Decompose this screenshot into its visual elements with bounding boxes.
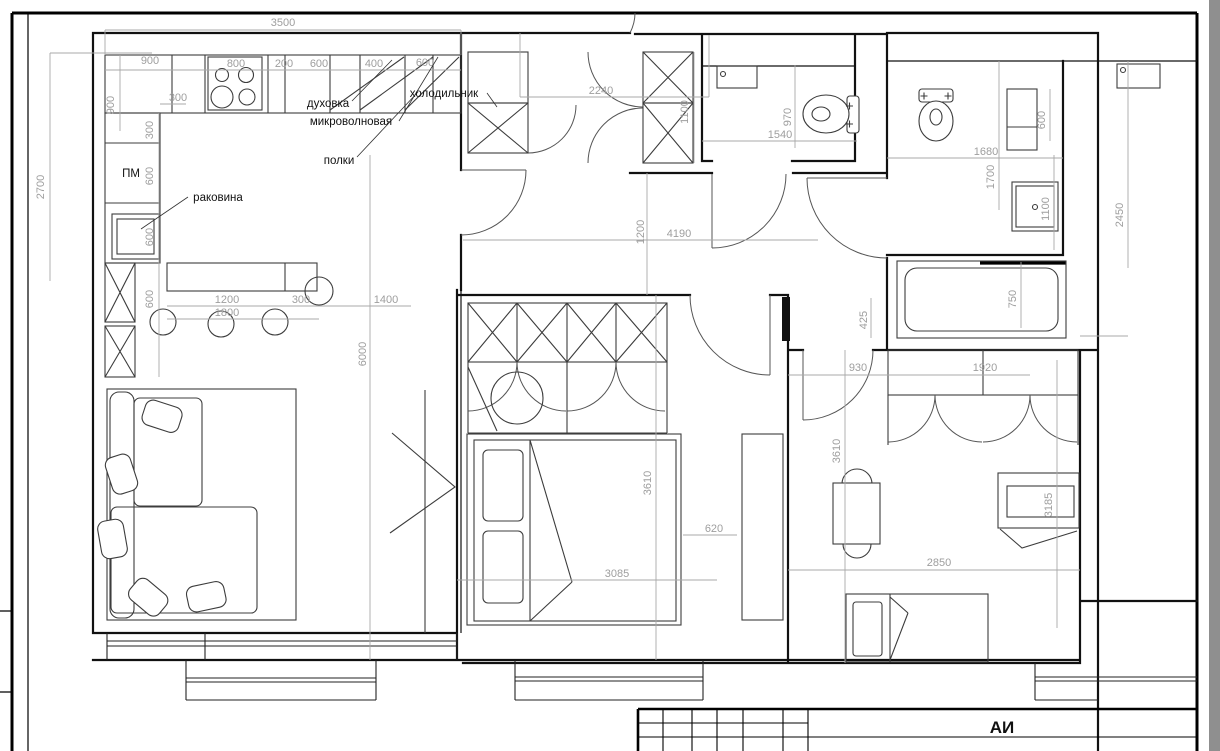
bar-stool (262, 309, 288, 335)
dim-text: 1800 (215, 307, 239, 319)
dim-text: 3610 (831, 439, 843, 463)
dim-text: 1100 (1040, 197, 1052, 221)
kids-table (833, 469, 880, 558)
entrance-door-arc (630, 13, 635, 33)
dim-text: 1540 (768, 129, 792, 141)
toilet-icon (919, 89, 953, 141)
dim-text: 2240 (589, 85, 613, 97)
chair-icon (491, 372, 543, 424)
pillow (483, 531, 523, 603)
dim-text: 900 (105, 96, 117, 114)
dim-text: 900 (141, 55, 159, 67)
dim-text: 6000 (357, 342, 369, 366)
dim-text: 3610 (642, 471, 654, 495)
stamp-code: АИ (990, 718, 1015, 737)
dim-text: 1100 (679, 100, 691, 124)
living-room-furniture (96, 389, 455, 633)
dim-text: 300 (169, 92, 187, 104)
pillow (853, 602, 882, 656)
bedroom-wardrobe (468, 303, 667, 433)
dimension-texts: 3500 900 800 200 600 400 600 300 900 300… (35, 17, 1126, 580)
microwave-label: микроволновая (310, 116, 392, 128)
windows (107, 633, 1197, 700)
dim-text: 600 (1036, 111, 1048, 129)
shelves-label: полки (324, 155, 355, 167)
corner-sofa (96, 389, 296, 620)
sink-label: раковина (193, 192, 243, 204)
double-bed-icon (467, 434, 681, 625)
dim-text: 2450 (1114, 203, 1126, 227)
dim-text: 400 (365, 58, 383, 70)
dim-text: 620 (705, 523, 723, 535)
dim-text: 300 (292, 294, 310, 306)
dim-text: 3085 (605, 568, 629, 580)
bathroom-cabinet (1007, 89, 1037, 150)
bar-stool (150, 309, 176, 335)
floor-plan-canvas[interactable]: 3500 900 800 200 600 400 600 300 900 300… (0, 0, 1220, 751)
dim-text: 1920 (973, 362, 997, 374)
dim-text: 3185 (1043, 493, 1055, 517)
dim-text: 930 (849, 362, 867, 374)
tall-cabinet (105, 263, 135, 377)
dim-text: 425 (858, 311, 870, 329)
dim-text: 300 (144, 121, 156, 139)
oven-label: духовка (307, 98, 350, 110)
sofa-cushion (185, 580, 228, 613)
dim-text: 200 (275, 58, 293, 70)
dim-text: 1700 (985, 165, 997, 189)
dim-text: 2850 (927, 557, 951, 569)
sofa-cushion (96, 518, 128, 560)
bathroom-sink-icon (717, 66, 757, 88)
floor-plan-drawing: 3500 900 800 200 600 400 600 300 900 300… (0, 0, 1220, 751)
dim-text: 1400 (374, 294, 398, 306)
walls (93, 13, 1197, 751)
dim-text: 600 (144, 228, 156, 246)
hall-closets (468, 52, 693, 163)
dishwasher-label: ПМ (122, 168, 140, 180)
washing-machine-icon (1117, 64, 1160, 88)
dim-text: 4190 (667, 228, 691, 240)
sofa-cushion (140, 398, 184, 434)
dimension-lines (50, 30, 1128, 663)
dim-text: 1200 (635, 220, 647, 244)
dim-text: 3500 (271, 17, 295, 29)
annotation-labels: духовка микроволновая полки ПМ раковина … (122, 57, 497, 229)
tv-icon (390, 433, 455, 533)
single-bed-icon (846, 594, 988, 662)
pillow (483, 450, 523, 521)
dim-text: 970 (782, 108, 794, 126)
dim-text: 1200 (215, 294, 239, 306)
title-block: АИ (638, 709, 1197, 751)
dim-text: 600 (310, 58, 328, 70)
dim-text: 2700 (35, 175, 47, 199)
wall-pier (782, 297, 790, 341)
dim-text: 600 (144, 167, 156, 185)
dim-text: 750 (1007, 290, 1019, 308)
sheet-frame (0, 13, 1197, 751)
desk-icon (998, 473, 1079, 548)
canvas-margin (1209, 0, 1220, 751)
fridge-label: холодильник (410, 88, 479, 100)
toilet-icon (803, 95, 859, 133)
dim-text: 800 (227, 58, 245, 70)
bedroom-cabinet (742, 434, 783, 620)
bathroom-2 (897, 64, 1160, 338)
bathtub-icon (897, 261, 1066, 338)
dim-text: 600 (144, 290, 156, 308)
dim-text: 1680 (974, 146, 998, 158)
